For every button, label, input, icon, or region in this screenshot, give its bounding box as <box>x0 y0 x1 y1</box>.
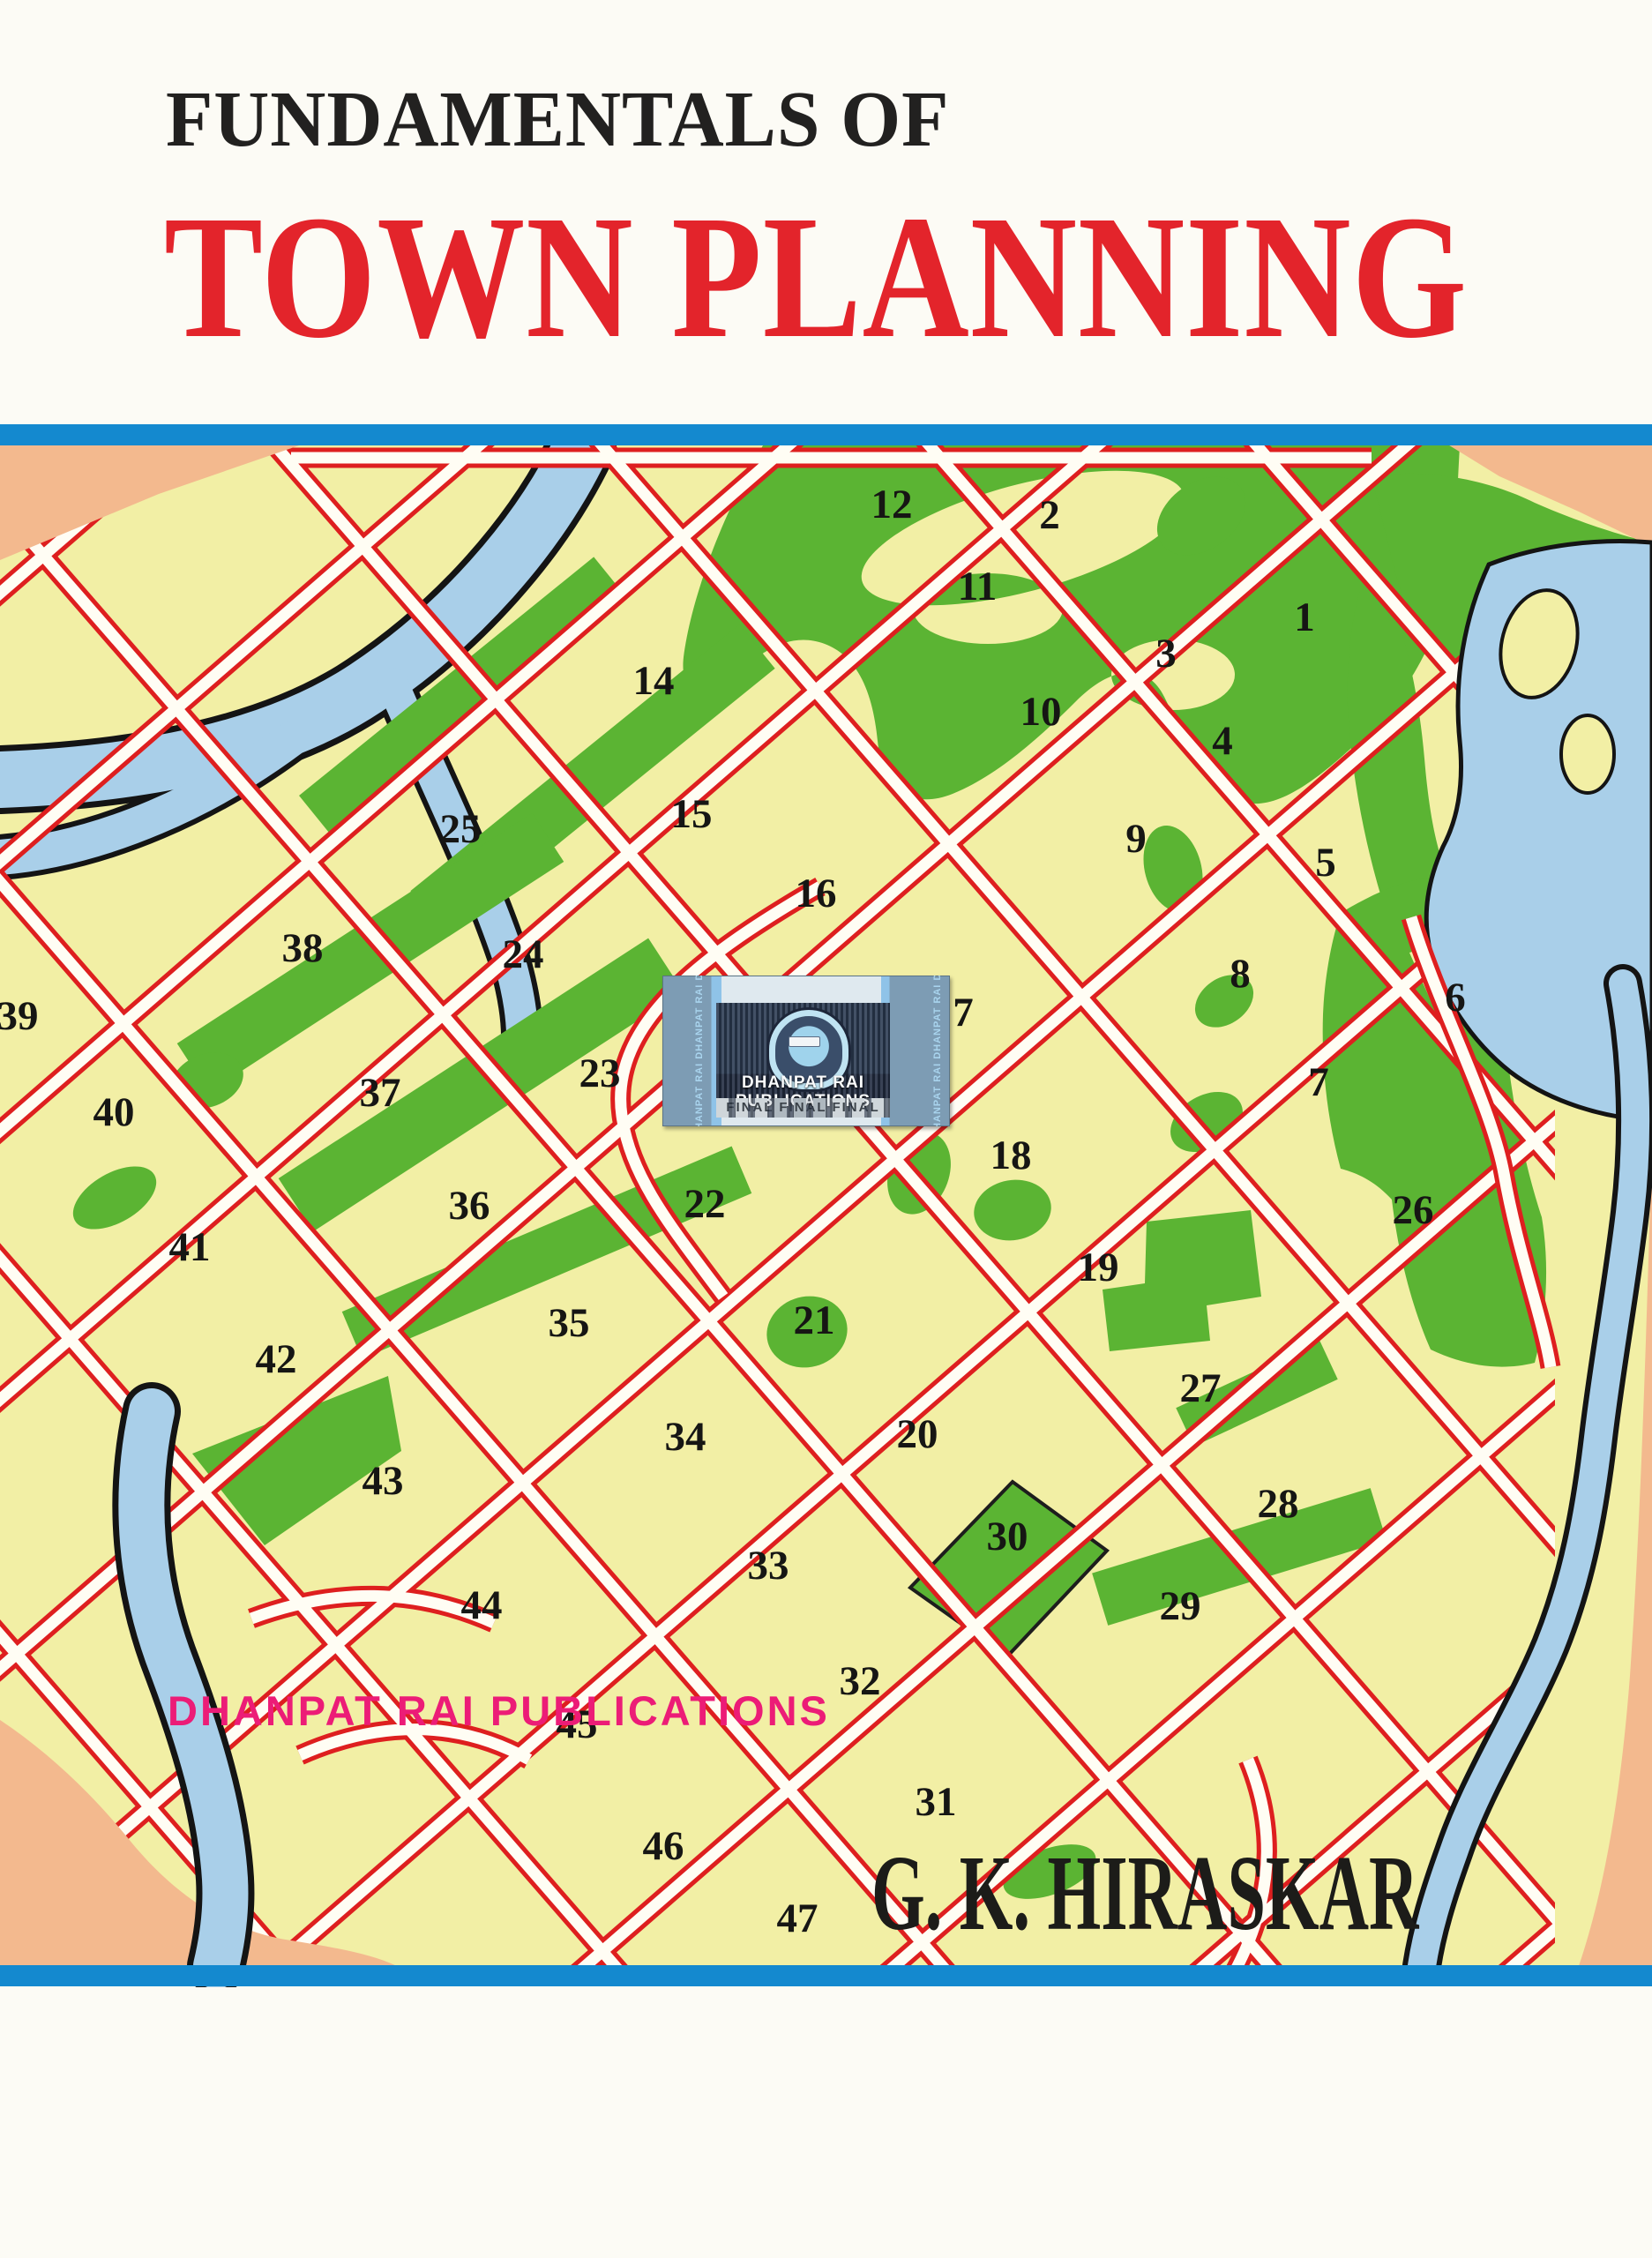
sticker-side-text: DHANPAT RAI DHANPAT RAI DHANPAT RAI <box>694 976 705 1126</box>
town-plan-map: 1234567789101112141516181920212223242526… <box>0 424 1652 1987</box>
book-cover: FUNDAMENTALS OF TOWN PLANNING <box>0 0 1652 2258</box>
sticker-bottom-text: FINAL FINAL FINAL <box>716 1098 890 1118</box>
author-name: G. K. HIRASKAR <box>871 1832 1418 1955</box>
sticker-side-text: DHANPAT RAI DHANPAT RAI DHANPAT RAI <box>932 976 943 1126</box>
title-small: FUNDAMENTALS OF <box>166 74 949 165</box>
sticker-side-band: DHANPAT RAI DHANPAT RAI DHANPAT RAI <box>662 976 712 1126</box>
hologram-chip-icon <box>789 1036 820 1047</box>
publisher-hologram-sticker: DHANPAT RAI DHANPAT RAI DHANPAT RAI DHAN… <box>662 976 950 1126</box>
sticker-side-band: DHANPAT RAI DHANPAT RAI DHANPAT RAI <box>901 976 950 1126</box>
publisher-line: DHANPAT RAI PUBLICATIONS <box>168 1686 830 1735</box>
map-border-bottom <box>0 1965 1652 1986</box>
map-border-top <box>0 424 1652 445</box>
map-artwork <box>0 424 1652 1987</box>
title-main: TOWN PLANNING <box>164 176 1468 378</box>
sticker-publisher-name: DHANPAT RAI <box>716 1073 890 1093</box>
